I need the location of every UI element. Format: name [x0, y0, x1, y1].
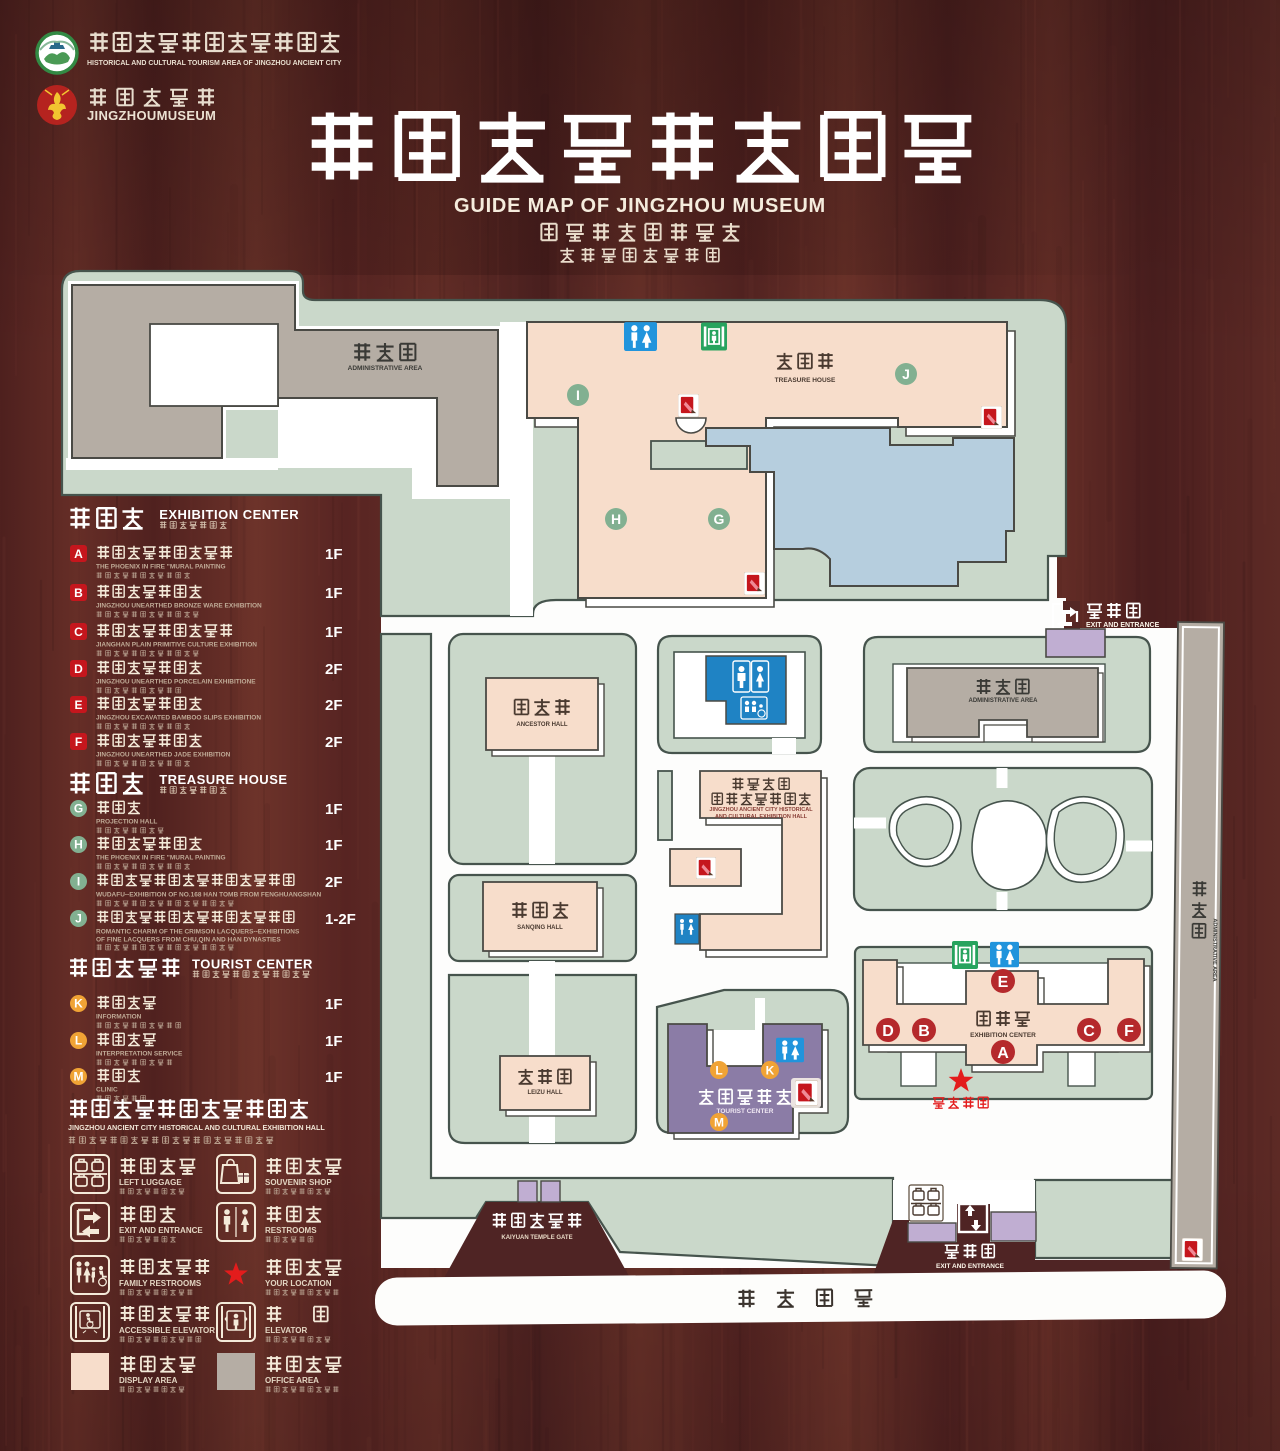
svg-text:1F: 1F	[325, 585, 343, 602]
svg-text:EXIT AND ENTRANCE: EXIT AND ENTRANCE	[1086, 622, 1160, 629]
svg-text:K: K	[766, 1063, 775, 1077]
svg-text:E: E	[998, 974, 1009, 991]
svg-text:1F: 1F	[325, 801, 343, 818]
svg-text:G: G	[74, 802, 83, 816]
svg-text:I: I	[77, 875, 80, 889]
svg-text:FAMILY RESTROOMS: FAMILY RESTROOMS	[119, 1279, 202, 1288]
svg-text:1F: 1F	[325, 546, 343, 563]
svg-text:D: D	[882, 1023, 894, 1040]
svg-text:D: D	[74, 662, 83, 676]
svg-text:PROJECTION HALL: PROJECTION HALL	[96, 819, 157, 826]
svg-text:TOURIST CENTER: TOURIST CENTER	[192, 957, 313, 972]
svg-text:DISPLAY AREA: DISPLAY AREA	[119, 1376, 178, 1385]
svg-text:CLINIC: CLINIC	[96, 1087, 118, 1094]
svg-text:TOURIST CENTER: TOURIST CENTER	[717, 1108, 774, 1115]
svg-text:A: A	[997, 1045, 1009, 1062]
svg-text:YOUR LOCATION: YOUR LOCATION	[265, 1279, 332, 1288]
svg-text:H: H	[611, 511, 621, 527]
svg-text:G: G	[714, 511, 725, 527]
svg-text:1-2F: 1-2F	[325, 911, 356, 928]
svg-text:ACCESSIBLE ELEVATOR: ACCESSIBLE ELEVATOR	[119, 1326, 215, 1335]
svg-text:LEFT LUGGAGE: LEFT LUGGAGE	[119, 1178, 182, 1187]
svg-text:JINGZHOU UNEARTHED PORCELAIN E: JINGZHOU UNEARTHED PORCELAIN EXHIBITIONE	[96, 679, 256, 686]
svg-text:GUIDE MAP OF JINGZHOU MUSEUM: GUIDE MAP OF JINGZHOU MUSEUM	[454, 195, 826, 217]
svg-text:TREASURE HOUSE: TREASURE HOUSE	[775, 377, 836, 384]
svg-text:ANCESTOR HALL: ANCESTOR HALL	[516, 722, 568, 728]
svg-text:JINGZHOUMUSEUM: JINGZHOUMUSEUM	[87, 108, 216, 123]
svg-text:EXHIBITION CENTER: EXHIBITION CENTER	[159, 507, 299, 522]
svg-text:JINGZHOU UNEARTHED BRONZE WARE: JINGZHOU UNEARTHED BRONZE WARE EXHIBITIO…	[96, 603, 262, 610]
svg-text:EXIT AND ENTRANCE: EXIT AND ENTRANCE	[119, 1226, 203, 1235]
svg-text:JIANGHAN PLAIN PRIMITIVE CULTU: JIANGHAN PLAIN PRIMITIVE CULTURE EXHIBIT…	[96, 642, 257, 649]
svg-text:J: J	[75, 912, 82, 926]
svg-text:B: B	[918, 1023, 930, 1040]
svg-text:TREASURE HOUSE: TREASURE HOUSE	[159, 772, 287, 787]
svg-text:SOUVENIR SHOP: SOUVENIR SHOP	[265, 1178, 332, 1187]
svg-text:JINGZHOU ANCIENT CITY HISTORIC: JINGZHOU ANCIENT CITY HISTORICAL	[709, 807, 813, 813]
svg-text:1F: 1F	[325, 1033, 343, 1050]
svg-text:JINGZHOU ANCIENT CITY HISTORIC: JINGZHOU ANCIENT CITY HISTORICAL AND CUL…	[68, 1123, 325, 1132]
svg-text:ADMINISTRATIVE AREA: ADMINISTRATIVE AREA	[969, 698, 1039, 704]
svg-text:ELEVATOR: ELEVATOR	[265, 1326, 307, 1335]
svg-text:L: L	[75, 1034, 82, 1048]
svg-text:THE PHOENIX IN FIRE "MURAL PAI: THE PHOENIX IN FIRE "MURAL PAINTING	[96, 855, 226, 862]
svg-text:EXIT AND ENTRANCE: EXIT AND ENTRANCE	[936, 1263, 1005, 1270]
svg-text:THE PHOENIX IN FIRE "MURAL PAI: THE PHOENIX IN FIRE "MURAL PAINTING	[96, 564, 226, 571]
svg-text:L: L	[715, 1063, 722, 1077]
svg-text:B: B	[74, 586, 83, 600]
svg-text:1F: 1F	[325, 1069, 343, 1086]
svg-text:2F: 2F	[325, 734, 343, 751]
svg-text:OFFICE AREA: OFFICE AREA	[265, 1376, 319, 1385]
svg-text:F: F	[1124, 1023, 1134, 1040]
svg-text:1F: 1F	[325, 996, 343, 1013]
svg-text:2F: 2F	[325, 661, 343, 678]
svg-text:INTERPRETATION SERVICE: INTERPRETATION SERVICE	[96, 1051, 183, 1058]
svg-text:J: J	[902, 366, 910, 382]
svg-text:RESTROOMS: RESTROOMS	[265, 1226, 317, 1235]
svg-text:ADMINISTRATIVE AREA: ADMINISTRATIVE AREA	[1211, 918, 1218, 981]
svg-text:OF FINE LACQUERS FROM CHU,QIN: OF FINE LACQUERS FROM CHU,QIN AND HAN DY…	[96, 937, 281, 944]
svg-text:K: K	[74, 997, 83, 1011]
svg-text:2F: 2F	[325, 697, 343, 714]
svg-text:2F: 2F	[325, 874, 343, 891]
svg-text:ROMANTIC CHARM OF THE CRIMSON: ROMANTIC CHARM OF THE CRIMSON LACQUERS--…	[96, 929, 300, 936]
svg-text:ADMINISTRATIVE AREA: ADMINISTRATIVE AREA	[348, 365, 423, 372]
svg-text:AND CULTURAL EXHIBITION HALL: AND CULTURAL EXHIBITION HALL	[715, 814, 808, 820]
svg-text:H: H	[74, 838, 83, 852]
svg-text:E: E	[74, 698, 82, 712]
svg-text:C: C	[74, 625, 83, 639]
svg-text:C: C	[1083, 1023, 1095, 1040]
svg-text:WUDAFU--EXHIBITION OF NO.168 H: WUDAFU--EXHIBITION OF NO.168 HAN TOMB FR…	[96, 892, 322, 899]
svg-text:1F: 1F	[325, 624, 343, 641]
svg-text:M: M	[74, 1070, 84, 1084]
svg-text:KAIYUAN TEMPLE GATE: KAIYUAN TEMPLE GATE	[501, 1235, 572, 1241]
svg-text:INFORMATION: INFORMATION	[96, 1014, 142, 1021]
svg-text:F: F	[75, 735, 82, 749]
svg-text:HISTORICAL AND CULTURAL TOURIS: HISTORICAL AND CULTURAL TOURISM AREA OF …	[87, 60, 342, 67]
svg-text:JINGZHOU UNEARTHED JADE EXHIBI: JINGZHOU UNEARTHED JADE EXHIBITION	[96, 752, 231, 759]
svg-text:LEIZU HALL: LEIZU HALL	[528, 1090, 563, 1096]
svg-text:SANQING HALL: SANQING HALL	[517, 925, 563, 931]
svg-text:EXHIBITION CENTER: EXHIBITION CENTER	[970, 1032, 1036, 1039]
svg-text:1F: 1F	[325, 837, 343, 854]
svg-text:JINGZHOU EXCAVATED BAMBOO SLIP: JINGZHOU EXCAVATED BAMBOO SLIPS EXHIBITI…	[96, 715, 261, 722]
svg-text:M: M	[714, 1115, 724, 1129]
svg-text:I: I	[576, 387, 580, 403]
svg-text:A: A	[74, 547, 83, 561]
